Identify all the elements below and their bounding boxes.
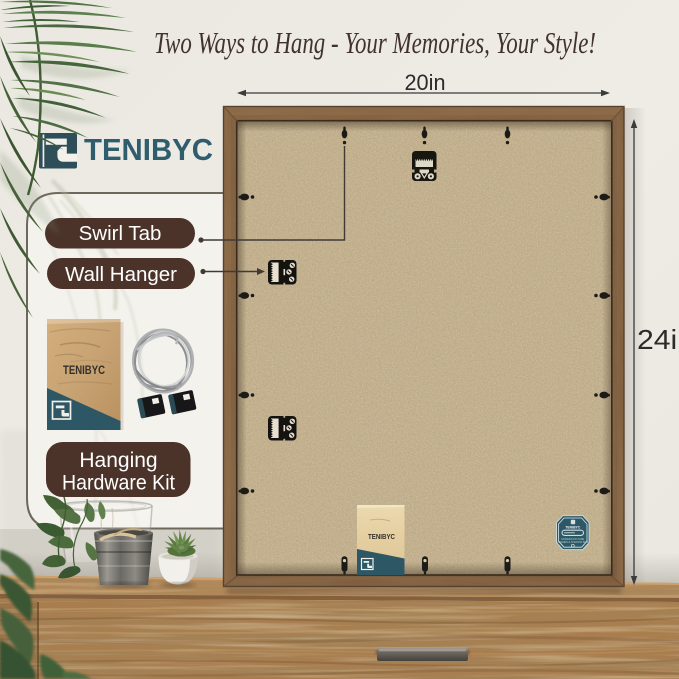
svg-text:Swirl Tab: Swirl Tab	[79, 222, 162, 245]
svg-text:FRAMES & SHADOW BOX: FRAMES & SHADOW BOX	[557, 541, 588, 544]
svg-text:TENIBYC: TENIBYC	[84, 132, 213, 167]
svg-text:TENIBYC: TENIBYC	[368, 532, 395, 541]
svg-text:Two Ways to Hang - Your Memori: Two Ways to Hang - Your Memories, Your S…	[154, 25, 596, 60]
svg-text:24in: 24in	[637, 324, 679, 355]
svg-text:Wall Hanger: Wall Hanger	[65, 263, 177, 286]
svg-text:Hanging: Hanging	[79, 449, 157, 472]
svg-text:TENIBYC: TENIBYC	[565, 525, 580, 529]
svg-text:TENIBYC: TENIBYC	[63, 365, 105, 377]
svg-text:20in: 20in	[405, 70, 446, 95]
svg-text:Hardware Kit: Hardware Kit	[62, 472, 175, 495]
